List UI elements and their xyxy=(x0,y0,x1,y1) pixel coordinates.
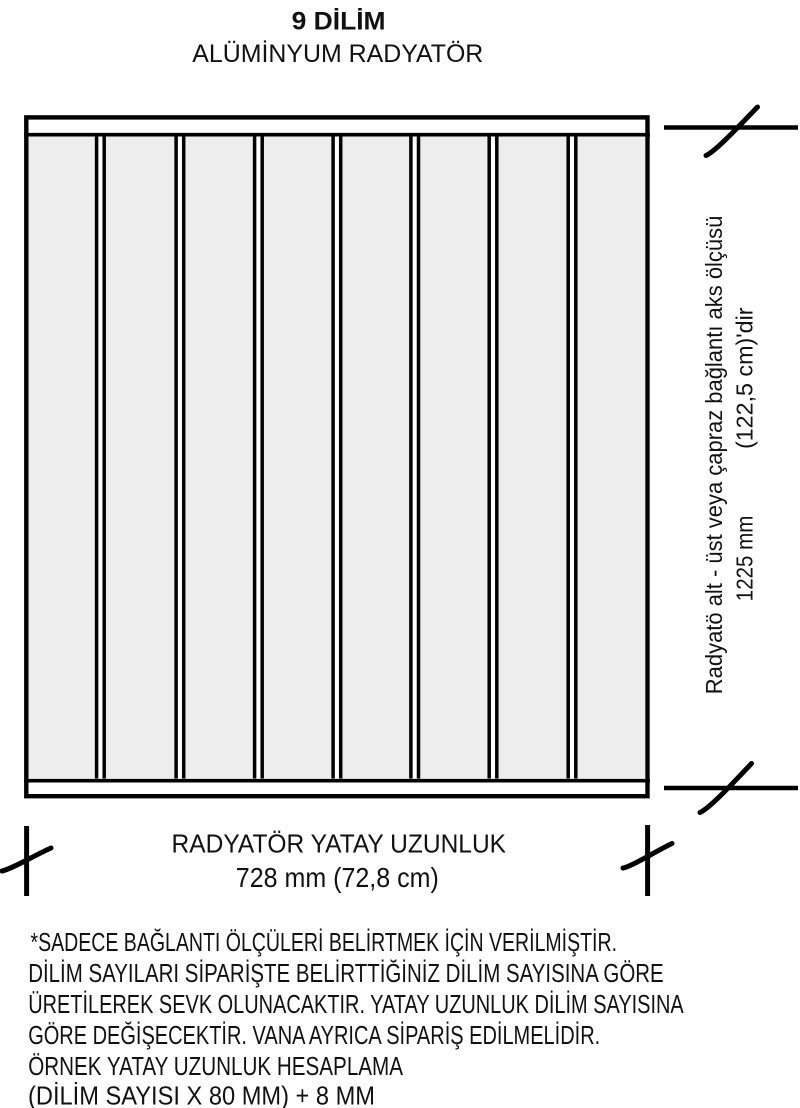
svg-text:(DİLİM SAYISI X 80 MM) + 8 MM: (DİLİM SAYISI X 80 MM) + 8 MM xyxy=(28,1081,375,1108)
svg-text:9 DİLİM: 9 DİLİM xyxy=(292,8,386,36)
svg-text:*SADECE BAĞLANTI ÖLÇÜLERİ BELİ: *SADECE BAĞLANTI ÖLÇÜLERİ BELİRTMEK İÇİN… xyxy=(31,927,618,957)
svg-text:ALÜMİNYUM RADYATÖR: ALÜMİNYUM RADYATÖR xyxy=(192,39,483,68)
svg-text:ÖRNEK YATAY UZUNLUK HESAPLAMA: ÖRNEK YATAY UZUNLUK HESAPLAMA xyxy=(28,1051,403,1081)
svg-text:RADYATÖR YATAY UZUNLUK: RADYATÖR YATAY UZUNLUK xyxy=(172,830,507,858)
svg-text:DİLİM SAYILARI SİPARİŞTE BELİR: DİLİM SAYILARI SİPARİŞTE BELİRTTİĞİNİZ D… xyxy=(28,958,664,988)
svg-text:(122,5 cm)'dir: (122,5 cm)'dir xyxy=(731,307,757,449)
svg-text:1225 mm: 1225 mm xyxy=(731,516,757,602)
svg-text:728 mm (72,8 cm): 728 mm (72,8 cm) xyxy=(236,862,439,893)
svg-text:GÖRE DEĞİŞECEKTİR. VANA AYRICA: GÖRE DEĞİŞECEKTİR. VANA AYRICA SİPARİŞ E… xyxy=(28,1020,600,1050)
svg-text:ÜRETİLEREK SEVK OLUNACAKTIR. Y: ÜRETİLEREK SEVK OLUNACAKTIR. YATAY UZUNL… xyxy=(28,989,684,1019)
svg-text:Radyatö alt - üst veya çapraz: Radyatö alt - üst veya çapraz bağlantı a… xyxy=(701,216,727,695)
